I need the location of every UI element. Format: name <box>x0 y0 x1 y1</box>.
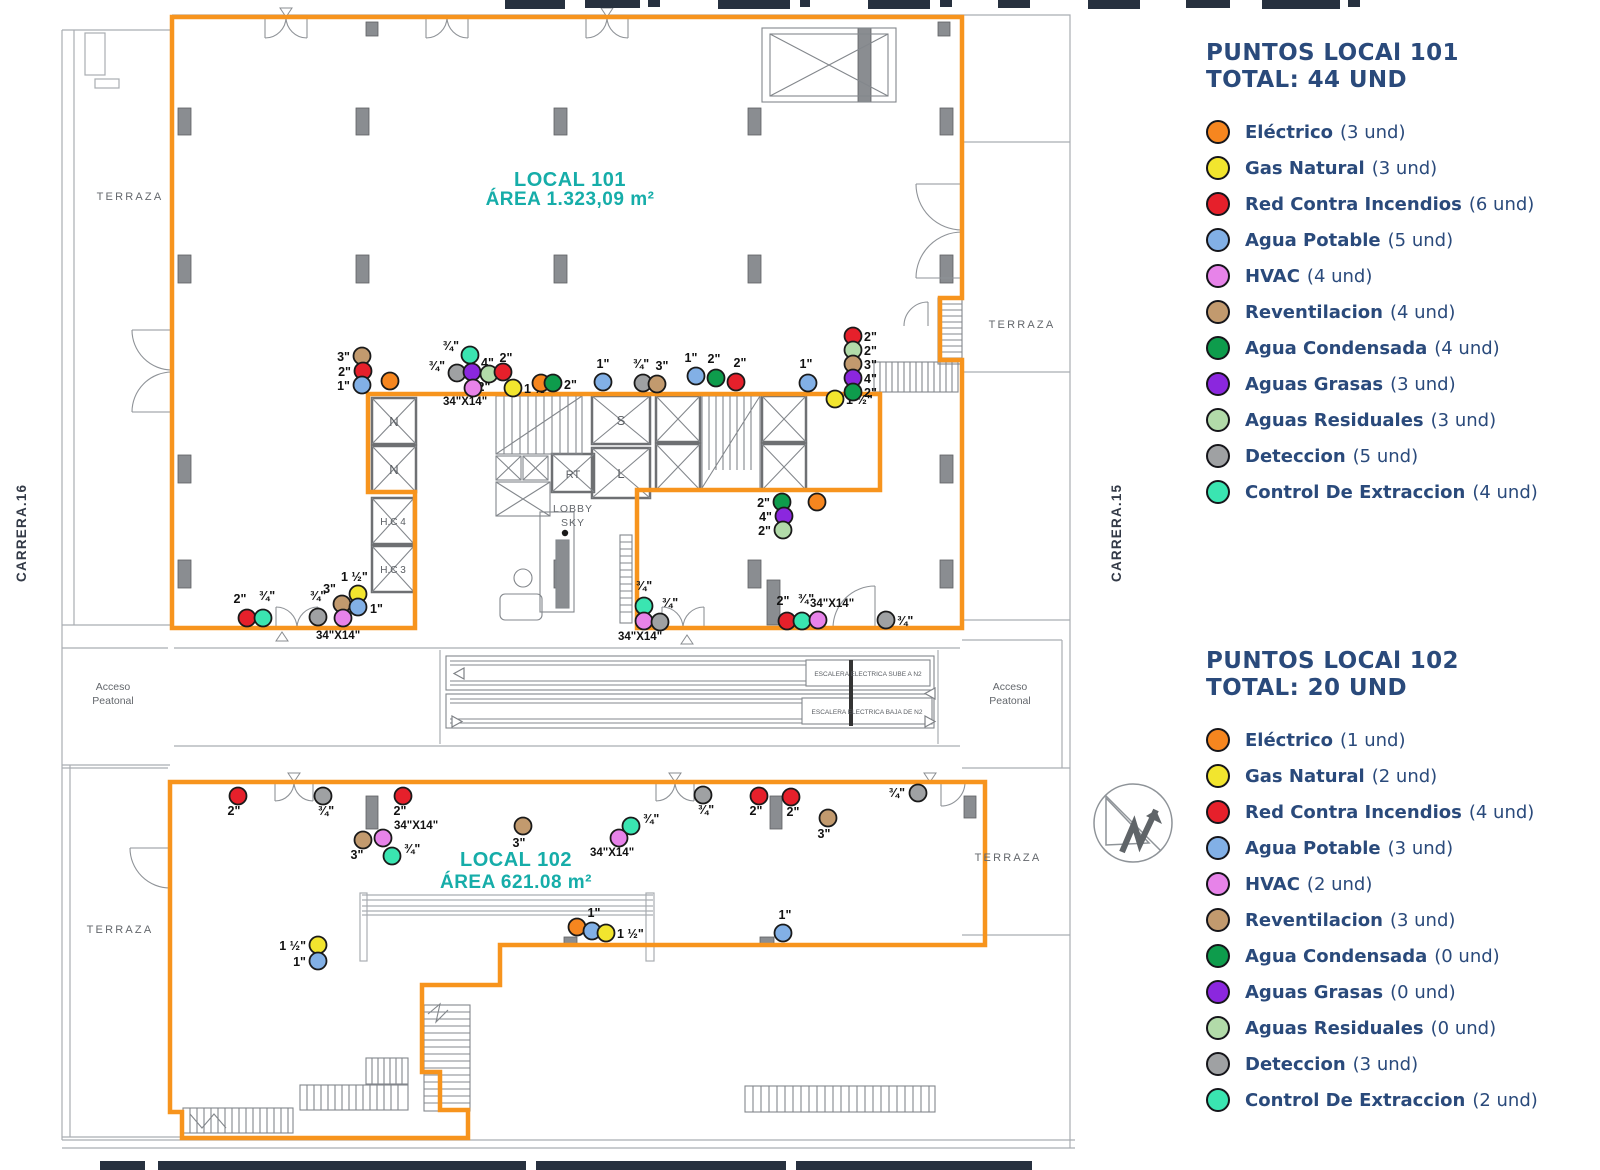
utility-point-size-label: 2" <box>338 365 351 379</box>
utility-point-size-label: ¾" <box>636 579 652 593</box>
legend-item-count: (1 und) <box>1340 730 1405 751</box>
utility-point-size-label: 1" <box>370 602 383 616</box>
terraza-right-mid: TERRAZA <box>975 852 1042 864</box>
legend-color-swatch-deteccion <box>1206 1052 1230 1076</box>
legend-item-name: Gas Natural <box>1245 766 1365 787</box>
legend-item: Aguas Grasas(3 und) <box>1206 366 1598 402</box>
utility-point-rci <box>495 364 512 381</box>
carrera-15-label: CARRERA.15 <box>1109 484 1124 582</box>
utility-point-rci <box>395 788 412 805</box>
utility-point-gas <box>598 925 615 942</box>
local-101-area: ÁREA 1.323,09 m² <box>486 188 655 210</box>
elevator-l: L <box>617 466 624 481</box>
legend-101-title: PUNTOS LOCAl 101 <box>1206 40 1598 67</box>
utility-point-size-label: ¾" <box>897 614 913 628</box>
utility-point-size-label: 3" <box>337 350 350 364</box>
utility-point-hvac <box>611 830 628 847</box>
utility-point-size-label: 1 ½" <box>341 570 368 584</box>
legend-color-swatch-revent <box>1206 908 1230 932</box>
utility-point-extraccion <box>255 610 272 627</box>
utility-point-rci <box>783 789 800 806</box>
utility-point-size-label: 3" <box>323 582 336 596</box>
utility-point-size-label: 3" <box>656 359 669 373</box>
utility-point-revent <box>355 832 372 849</box>
utility-point-size-label: 2" <box>787 805 800 819</box>
legend-color-swatch-grasas <box>1206 980 1230 1004</box>
legend-item-name: Aguas Grasas <box>1245 374 1383 395</box>
legend-color-swatch-gas <box>1206 156 1230 180</box>
duct-size-label: 34"X14" <box>590 847 634 859</box>
local-102-area: ÁREA 621.08 m² <box>440 871 592 893</box>
utility-point-size-label: 2" <box>564 378 577 392</box>
acceso-left-1: Acceso <box>96 681 131 693</box>
utility-point-size-label: 1" <box>293 955 306 969</box>
utility-point-size-label: 1" <box>779 908 792 922</box>
utility-point-deteccion <box>310 609 327 626</box>
legend-item-count: (2 und) <box>1307 874 1372 895</box>
legend-item: Eléctrico(3 und) <box>1206 114 1598 150</box>
legend-item-name: Agua Potable <box>1245 230 1381 251</box>
legend-item-name: Control De Extraccion <box>1245 482 1465 503</box>
utility-point-agua <box>800 375 817 392</box>
utility-point-extraccion <box>384 848 401 865</box>
acceso-left-2: Peatonal <box>92 695 133 707</box>
elevator-s: S <box>617 413 626 428</box>
legend-color-swatch-extraccion <box>1206 480 1230 504</box>
utility-point-hvac <box>335 610 352 627</box>
utility-point-agua <box>688 368 705 385</box>
utility-point-size-label: 1" <box>800 357 813 371</box>
utility-point-size-label: ¾" <box>318 804 334 818</box>
legend-item: Deteccion(3 und) <box>1206 1046 1598 1082</box>
legend-102-total: TOTAL: 20 UND <box>1206 675 1598 702</box>
legend-color-swatch-electrico <box>1206 728 1230 752</box>
elevator-hc4: H.C 4 <box>380 517 406 528</box>
legend-item-count: (4 und) <box>1469 802 1534 823</box>
legend-item-count: (4 und) <box>1307 266 1372 287</box>
legend-item-count: (6 und) <box>1469 194 1534 215</box>
bottom-annotation-strip <box>100 1161 1032 1170</box>
legend-item-count: (3 und) <box>1431 410 1496 431</box>
legend-item-name: Gas Natural <box>1245 158 1365 179</box>
legend-item: Agua Condensada(4 und) <box>1206 330 1598 366</box>
duct-size-label: 34"X14" <box>443 396 487 408</box>
utility-point-hvac <box>810 612 827 629</box>
utility-point-rci <box>728 374 745 391</box>
utility-point-size-label: 1" <box>337 379 350 393</box>
legend-item: Red Contra Incendios(4 und) <box>1206 794 1598 830</box>
lobby-label-2: SKY <box>561 517 585 529</box>
local-101-title: LOCAL 101 <box>514 169 626 191</box>
utility-point-extraccion <box>794 613 811 630</box>
legend-color-swatch-agua <box>1206 228 1230 252</box>
utility-point-extraccion <box>462 347 479 364</box>
floor-plan-page: 3"2"1"¾"¾"4"2"2"1 ½"2"1"¾"3"1"2"2"1"1 ½"… <box>0 0 1600 1170</box>
legend-item: Control De Extraccion(2 und) <box>1206 1082 1598 1118</box>
escalator-down-label: ESCALERA ELECTRICA BAJA DE N2 <box>812 709 923 716</box>
legend-item-name: Eléctrico <box>1245 122 1333 143</box>
columns <box>178 22 976 944</box>
utility-point-size-label: 4" <box>759 510 772 524</box>
legend-item-name: HVAC <box>1245 266 1300 287</box>
utility-point-size-label: 3" <box>818 827 831 841</box>
legend-color-swatch-hvac <box>1206 264 1230 288</box>
terraza-top-left: TERRAZA <box>97 191 164 203</box>
legend-item-name: Agua Potable <box>1245 838 1381 859</box>
utility-point-rci <box>751 788 768 805</box>
utility-point-electrico <box>809 494 826 511</box>
utility-point-condensada <box>845 384 862 401</box>
utility-point-size-label: ¾" <box>259 589 275 603</box>
legend-item-count: (0 und) <box>1431 1018 1496 1039</box>
legend-item: Agua Condensada(0 und) <box>1206 938 1598 974</box>
doors <box>130 17 965 888</box>
utility-point-gas <box>827 391 844 408</box>
utility-point-size-label: ¾" <box>633 357 649 371</box>
legend-item: Reventilacion(4 und) <box>1206 294 1598 330</box>
legend-101-items: Eléctrico(3 und)Gas Natural(3 und)Red Co… <box>1206 114 1598 510</box>
elevator-n2: N <box>389 462 398 477</box>
legend-color-swatch-condensada <box>1206 944 1230 968</box>
duct-size-label: 34"X14" <box>316 630 360 642</box>
utility-point-agua <box>350 599 367 616</box>
utility-point-electrico <box>382 373 399 390</box>
utility-point-size-label: ¾" <box>662 596 678 610</box>
utility-point-size-label: 2" <box>864 386 877 400</box>
legend-item-count: (3 und) <box>1388 838 1453 859</box>
legend-item: HVAC(2 und) <box>1206 866 1598 902</box>
legend-color-swatch-extraccion <box>1206 1088 1230 1112</box>
utility-point-size-label: 3" <box>513 836 526 850</box>
legend-item-count: (3 und) <box>1340 122 1405 143</box>
utility-point-size-label: 2" <box>750 804 763 818</box>
legend-color-swatch-revent <box>1206 300 1230 324</box>
utility-point-size-label: ¾" <box>443 339 459 353</box>
legend-item-name: Aguas Residuales <box>1245 1018 1424 1039</box>
legend-item: Agua Potable(3 und) <box>1206 830 1598 866</box>
utility-point-size-label: ¾" <box>643 812 659 826</box>
utility-point-size-label: 2" <box>708 352 721 366</box>
legend-color-swatch-grasas <box>1206 372 1230 396</box>
utility-point-size-label: 1 ½" <box>617 927 644 941</box>
legend-local-102: PUNTOS LOCAl 102 TOTAL: 20 UND Eléctrico… <box>1206 648 1598 1118</box>
utility-point-size-label: 3" <box>351 848 364 862</box>
legend-101-total: TOTAL: 44 UND <box>1206 67 1598 94</box>
utility-point-size-label: 2" <box>234 592 247 606</box>
legend-102-items: Eléctrico(1 und)Gas Natural(2 und)Red Co… <box>1206 722 1598 1118</box>
legend-item-count: (3 und) <box>1390 374 1455 395</box>
utility-point-rci <box>230 788 247 805</box>
legend-item-name: Deteccion <box>1245 1054 1346 1075</box>
legend-item-count: (4 und) <box>1434 338 1499 359</box>
utility-point-size-label: 4" <box>864 372 877 386</box>
acceso-right-1: Acceso <box>993 681 1028 693</box>
legend-item-count: (0 und) <box>1434 946 1499 967</box>
utility-point-deteccion <box>910 785 927 802</box>
legend-item-name: Eléctrico <box>1245 730 1333 751</box>
top-annotation-strip <box>505 0 1360 9</box>
legend-item: HVAC(4 und) <box>1206 258 1598 294</box>
legend-item-count: (5 und) <box>1353 446 1418 467</box>
legend-color-swatch-gas <box>1206 764 1230 788</box>
legend-item-count: (0 und) <box>1390 982 1455 1003</box>
legend-item: Control De Extraccion(4 und) <box>1206 474 1598 510</box>
utility-point-size-label: 1" <box>685 351 698 365</box>
utility-point-size-label: ¾" <box>404 842 420 856</box>
utility-point-revent <box>649 376 666 393</box>
utility-point-hvac <box>375 830 392 847</box>
legend-item-name: Reventilacion <box>1245 302 1383 323</box>
legend-color-swatch-condensada <box>1206 336 1230 360</box>
legend-item-count: (3 und) <box>1372 158 1437 179</box>
elevator-n1: N <box>389 414 398 429</box>
utility-point-condensada <box>708 370 725 387</box>
legend-color-swatch-electrico <box>1206 120 1230 144</box>
legend-item-name: Agua Condensada <box>1245 338 1427 359</box>
utility-point-size-label: 2" <box>500 351 513 365</box>
utility-point-gas <box>310 937 327 954</box>
local-102-title: LOCAL 102 <box>460 849 572 871</box>
utility-point-gas <box>505 380 522 397</box>
utility-point-rci <box>239 610 256 627</box>
legend-item-count: (2 und) <box>1472 1090 1537 1111</box>
legend-item: Aguas Residuales(0 und) <box>1206 1010 1598 1046</box>
legend-item-name: Red Contra Incendios <box>1245 802 1462 823</box>
legend-item-name: Red Contra Incendios <box>1245 194 1462 215</box>
legend-item-name: HVAC <box>1245 874 1300 895</box>
legend-item-name: Agua Condensada <box>1245 946 1427 967</box>
legend-item-count: (5 und) <box>1388 230 1453 251</box>
north-compass-icon <box>1094 784 1172 862</box>
legend-item: Aguas Grasas(0 und) <box>1206 974 1598 1010</box>
utility-point-deteccion <box>878 612 895 629</box>
utility-point-size-label: 2" <box>758 524 771 538</box>
utility-point-agua <box>775 925 792 942</box>
utility-point-size-label: 2" <box>777 594 790 608</box>
legend-color-swatch-residuales <box>1206 1016 1230 1040</box>
legend-color-swatch-agua <box>1206 836 1230 860</box>
utility-point-size-label: 3" <box>864 358 877 372</box>
duct-size-label: 34"X14" <box>394 820 438 832</box>
legend-102-title: PUNTOS LOCAl 102 <box>1206 648 1598 675</box>
utility-point-size-label: 2" <box>757 496 770 510</box>
legend-color-swatch-hvac <box>1206 872 1230 896</box>
legend-item: Eléctrico(1 und) <box>1206 722 1598 758</box>
utility-point-revent <box>515 818 532 835</box>
legend-item-count: (2 und) <box>1372 766 1437 787</box>
legend-item-count: (4 und) <box>1472 482 1537 503</box>
utility-point-agua <box>354 377 371 394</box>
legend-local-101: PUNTOS LOCAl 101 TOTAL: 44 UND Eléctrico… <box>1206 40 1598 510</box>
utility-point-residuales <box>775 522 792 539</box>
utility-point-deteccion <box>652 614 669 631</box>
legend-item: Agua Potable(5 und) <box>1206 222 1598 258</box>
utility-point-size-label: 2" <box>864 344 877 358</box>
utility-point-size-label: ¾" <box>889 786 905 800</box>
terraza-top-right: TERRAZA <box>989 319 1056 331</box>
duct-size-label: 34"X14" <box>618 631 662 643</box>
legend-item-name: Aguas Residuales <box>1245 410 1424 431</box>
utility-point-size-label: 2" <box>394 804 407 818</box>
carrera-16-label: CARRERA.16 <box>14 484 29 582</box>
legend-item: Gas Natural(3 und) <box>1206 150 1598 186</box>
legend-item-count: (3 und) <box>1390 910 1455 931</box>
elevator-hc3: H.C 3 <box>380 565 406 576</box>
utility-point-size-label: ¾" <box>429 359 445 373</box>
legend-item: Reventilacion(3 und) <box>1206 902 1598 938</box>
elevator-rt: RT <box>566 469 581 481</box>
legend-item-name: Deteccion <box>1245 446 1346 467</box>
legend-item-count: (3 und) <box>1353 1054 1418 1075</box>
duct-size-label: 34"X14" <box>810 598 854 610</box>
utility-point-size-label: 1" <box>588 906 601 920</box>
legend-item: Red Contra Incendios(6 und) <box>1206 186 1598 222</box>
legend-item: Aguas Residuales(3 und) <box>1206 402 1598 438</box>
acceso-right-2: Peatonal <box>989 695 1030 707</box>
legend-item-name: Reventilacion <box>1245 910 1383 931</box>
utility-point-size-label: 1" <box>597 357 610 371</box>
legend-color-swatch-rci <box>1206 192 1230 216</box>
utility-point-agua <box>310 953 327 970</box>
legend-item-name: Control De Extraccion <box>1245 1090 1465 1111</box>
legend-color-swatch-deteccion <box>1206 444 1230 468</box>
escalator-up-label: ESCALERA ELECTRICA SUBE A N2 <box>814 671 922 678</box>
utility-point-condensada <box>545 375 562 392</box>
utility-point-size-label: 2" <box>734 356 747 370</box>
utility-point-hvac <box>465 380 482 397</box>
utility-point-size-label: 2" <box>228 804 241 818</box>
legend-color-swatch-residuales <box>1206 408 1230 432</box>
utility-point-grasas <box>464 364 481 381</box>
legend-item: Deteccion(5 und) <box>1206 438 1598 474</box>
utility-point-size-label: ¾" <box>698 803 714 817</box>
legend-color-swatch-rci <box>1206 800 1230 824</box>
terraza-bottom-left: TERRAZA <box>87 924 154 936</box>
legend-item: Gas Natural(2 und) <box>1206 758 1598 794</box>
legend-item-name: Aguas Grasas <box>1245 982 1383 1003</box>
utility-point-size-label: 2" <box>864 330 877 344</box>
utility-point-deteccion <box>695 787 712 804</box>
lobby-label-1: LOBBY <box>553 503 593 515</box>
utility-point-hvac <box>636 613 653 630</box>
utility-point-agua <box>595 374 612 391</box>
utility-point-revent <box>820 810 837 827</box>
utility-point-size-label: 1 ½" <box>279 939 306 953</box>
legend-item-count: (4 und) <box>1390 302 1455 323</box>
utility-point-deteccion <box>315 788 332 805</box>
